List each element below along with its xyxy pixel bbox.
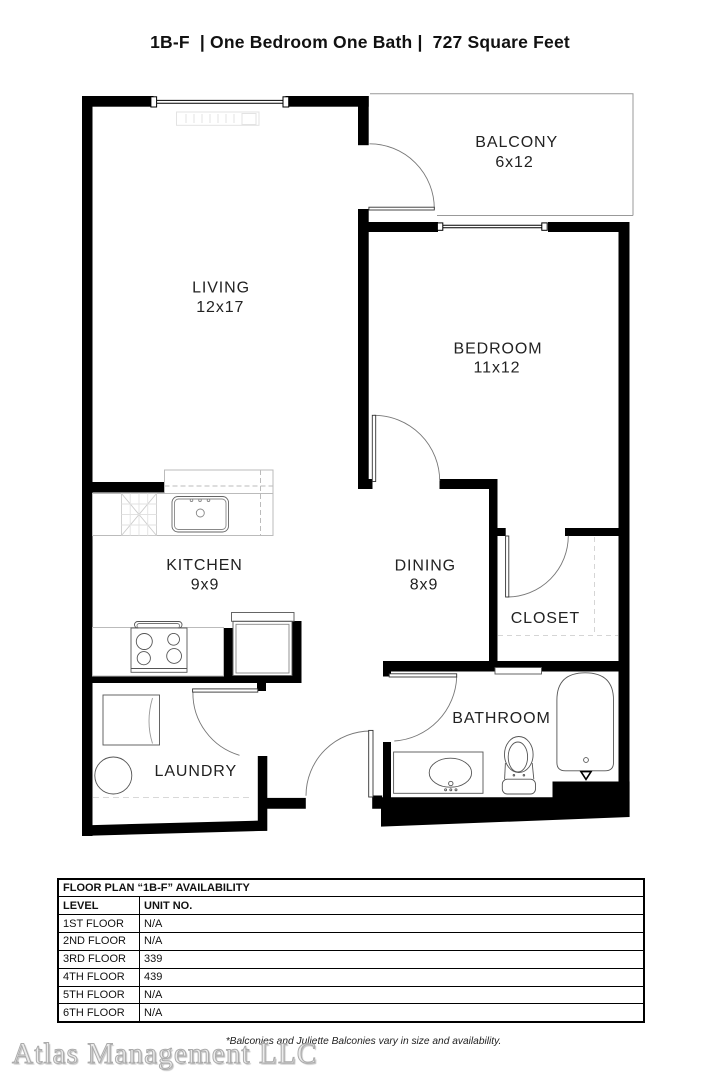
svg-text:8x9: 8x9 [410, 577, 439, 594]
svg-text:BATHROOM: BATHROOM [452, 710, 550, 727]
svg-text:CLOSET: CLOSET [511, 610, 580, 627]
svg-text:KITCHEN: KITCHEN [166, 557, 243, 574]
svg-text:9x9: 9x9 [191, 577, 220, 594]
svg-text:11x12: 11x12 [474, 359, 521, 376]
svg-text:BALCONY: BALCONY [475, 134, 558, 151]
svg-text:12x17: 12x17 [196, 299, 244, 316]
svg-text:LAUNDRY: LAUNDRY [155, 763, 237, 780]
svg-text:6x12: 6x12 [495, 154, 533, 171]
svg-text:LIVING: LIVING [192, 279, 250, 296]
svg-text:BEDROOM: BEDROOM [454, 340, 543, 357]
svg-text:DINING: DINING [395, 558, 456, 575]
